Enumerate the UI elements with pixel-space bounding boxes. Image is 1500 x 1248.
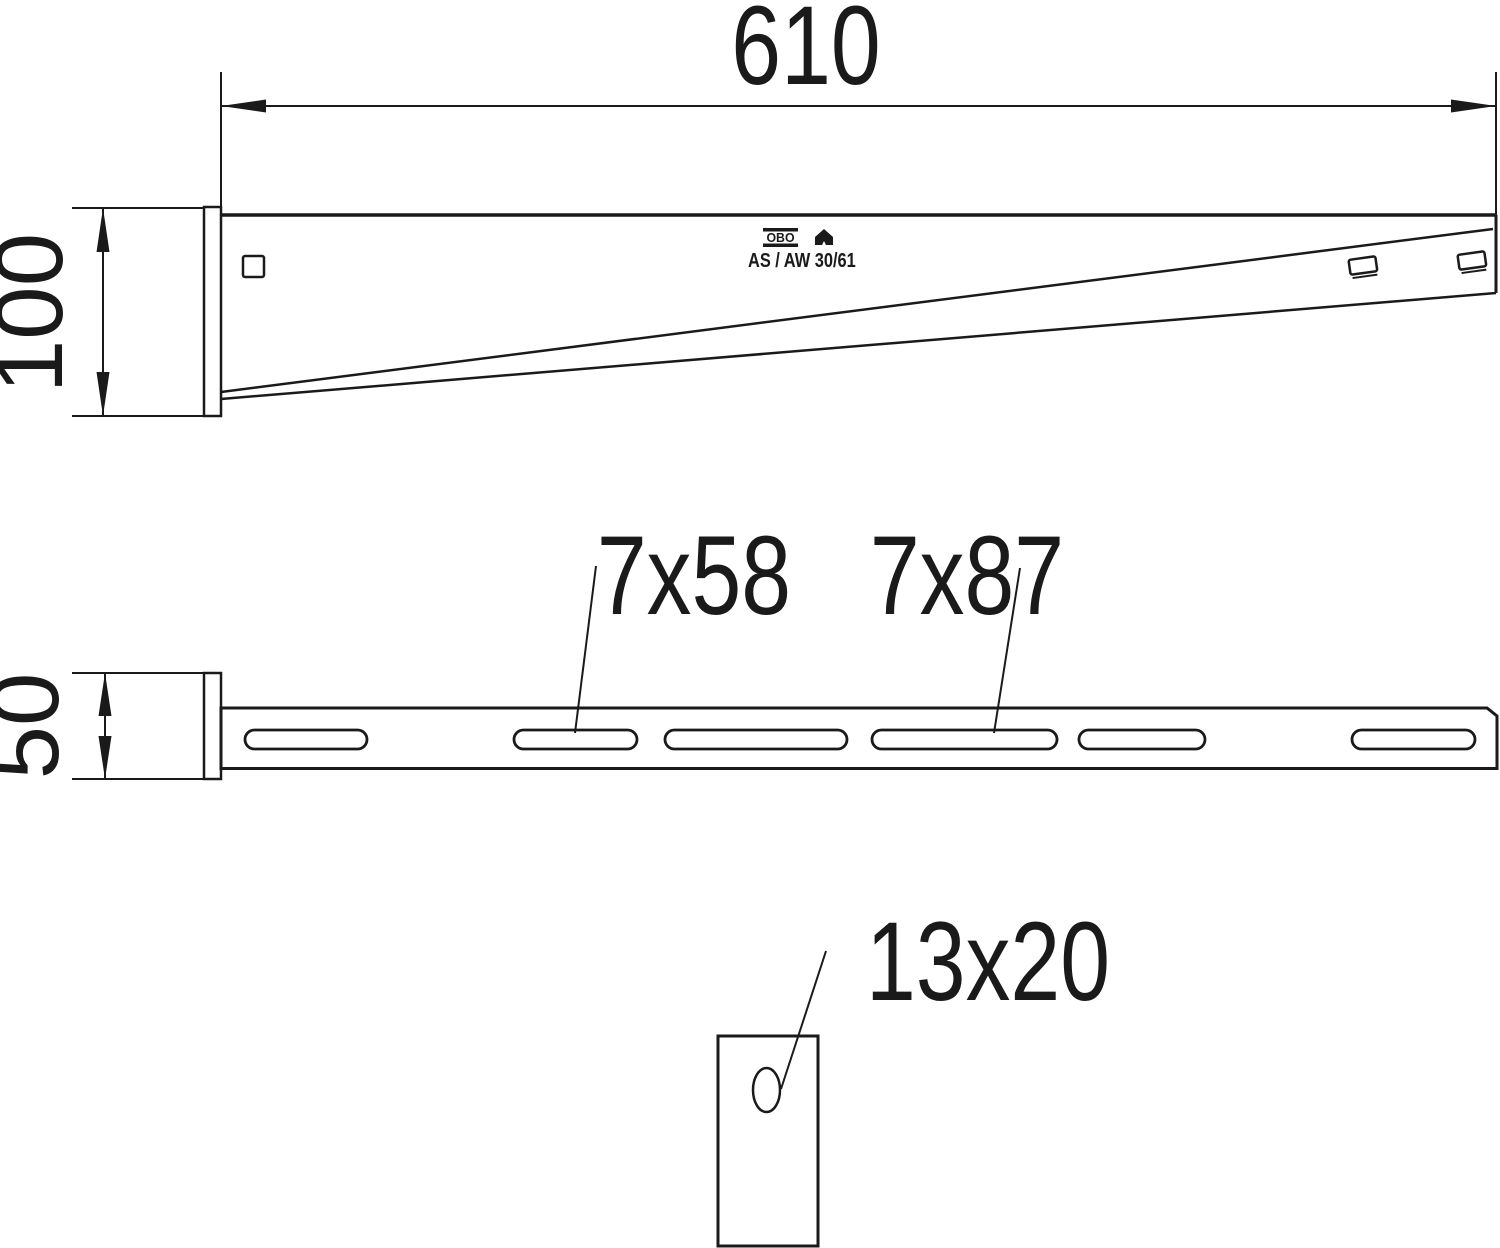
arrowhead-left: [221, 100, 266, 113]
bracket-arm-plan: [221, 708, 1497, 769]
oblong-hole-13x20: [753, 1068, 780, 1112]
house-icon: [815, 229, 833, 245]
wall-plate-side: [204, 207, 221, 416]
product-marking-group: OBO AS / AW 30/61: [748, 228, 856, 271]
arrowhead-top: [99, 673, 112, 716]
slot-7x58-3: [1079, 730, 1205, 749]
arm-brace-lower-edge: [221, 293, 1496, 399]
detail-view: 13x20: [718, 900, 1110, 1246]
bracket-arm-side: [221, 215, 1496, 399]
dimension-100: 100: [0, 208, 204, 416]
side-view: 610 100: [0, 0, 1496, 416]
square-hole: [243, 256, 264, 277]
arrowhead-top: [97, 208, 110, 252]
arrowhead-bottom: [99, 736, 112, 779]
plan-view: 50 7x58 7x87: [0, 514, 1497, 780]
hole-label-13x20: 13x20: [866, 900, 1110, 1025]
obo-logo: OBO: [763, 228, 798, 247]
dimension-610: 610: [221, 0, 1496, 215]
dim-width-value: 50: [0, 673, 79, 780]
obo-logo-text: OBO: [766, 231, 794, 245]
callout-13x20: 13x20: [781, 900, 1110, 1089]
slot-7x87-1: [665, 730, 847, 749]
arrowhead-right: [1451, 100, 1496, 113]
technical-drawing: 610 100: [0, 0, 1500, 1248]
wall-plate-plan: [204, 673, 221, 779]
slot-7x58-1: [245, 730, 367, 749]
product-code: AS / AW 30/61: [748, 248, 856, 271]
obo-logo-bottom-bar: [763, 244, 798, 248]
slot-end-opening-2: [1458, 251, 1487, 273]
slotted-holes: [245, 730, 1475, 749]
callout-7x58: 7x58: [575, 514, 791, 733]
slot-label-7x58: 7x58: [597, 514, 791, 639]
arm-brace-upper-edge: [221, 229, 1493, 392]
dim-length-value: 610: [731, 0, 880, 108]
dimension-50: 50: [0, 673, 204, 780]
slot-7x87-2: [872, 730, 1057, 749]
callout-7x87: 7x87: [870, 514, 1064, 733]
dim-height-value: 100: [0, 233, 83, 393]
slot-label-7x87: 7x87: [870, 514, 1064, 639]
slot-end-opening-1: [1349, 256, 1378, 278]
slot-7x58-4: [1352, 730, 1475, 749]
arrowhead-bottom: [97, 372, 110, 416]
